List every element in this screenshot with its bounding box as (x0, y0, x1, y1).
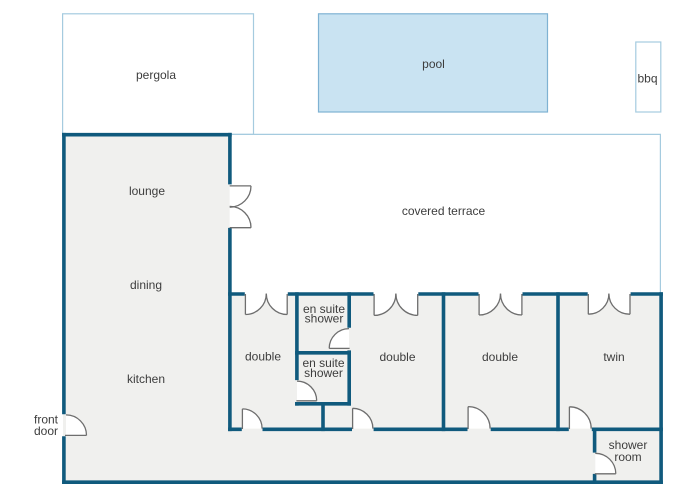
svg-text:shower: shower (304, 366, 343, 380)
svg-text:double: double (245, 350, 281, 364)
svg-text:bbq: bbq (637, 72, 657, 86)
svg-text:pergola: pergola (136, 68, 176, 82)
svg-text:double: double (482, 350, 518, 364)
svg-text:room: room (614, 450, 641, 464)
svg-text:shower: shower (305, 312, 344, 326)
svg-text:lounge: lounge (129, 184, 165, 198)
svg-text:covered terrace: covered terrace (402, 204, 486, 218)
svg-text:pool: pool (422, 57, 445, 71)
svg-text:kitchen: kitchen (127, 372, 165, 386)
svg-text:twin: twin (603, 350, 624, 364)
svg-text:double: double (379, 350, 415, 364)
svg-text:dining: dining (130, 278, 162, 292)
svg-text:door: door (34, 424, 58, 438)
